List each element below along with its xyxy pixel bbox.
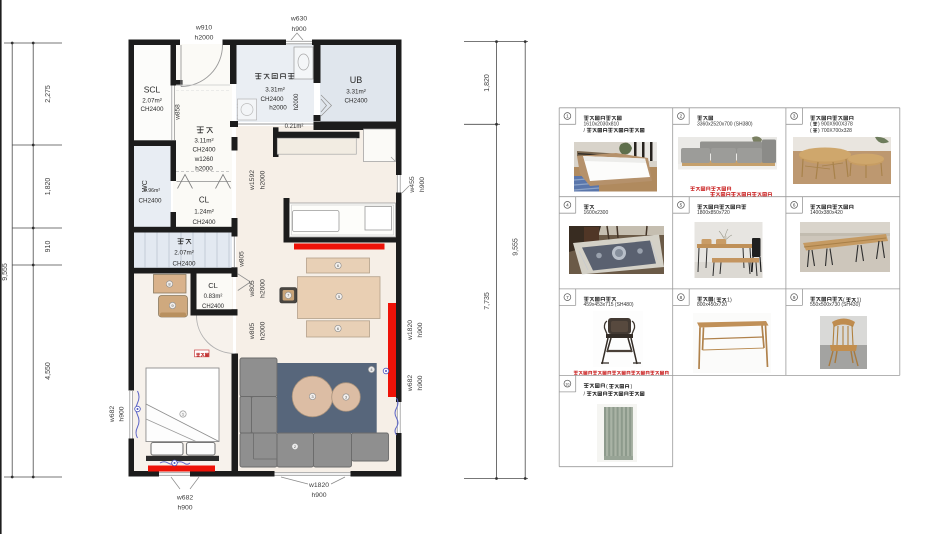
- svg-text:CH2400: CH2400: [172, 261, 196, 268]
- svg-text:h2000: h2000: [260, 170, 267, 189]
- svg-text:3.31m²: 3.31m²: [265, 87, 285, 94]
- svg-text:CL: CL: [208, 281, 218, 290]
- svg-text:CH2400: CH2400: [260, 96, 284, 103]
- svg-text:4,550: 4,550: [45, 362, 52, 380]
- svg-text:459x453x715 (SH480): 459x453x715 (SH480): [584, 302, 634, 308]
- svg-text:550x500x730 (SH430): 550x500x730 (SH430): [810, 302, 860, 308]
- svg-text:CH2400: CH2400: [138, 198, 162, 205]
- svg-text:1,820: 1,820: [484, 74, 491, 92]
- svg-text:w682: w682: [176, 495, 193, 502]
- svg-text:910: 910: [45, 241, 52, 253]
- svg-text:w910: w910: [195, 25, 212, 32]
- svg-text:h2000: h2000: [260, 321, 267, 340]
- svg-text:) 700X700x328: ) 700X700x328: [818, 128, 852, 134]
- svg-text:h900: h900: [311, 492, 326, 499]
- svg-text:CL: CL: [199, 196, 210, 205]
- svg-text:w805: w805: [249, 280, 256, 297]
- svg-text:h2000: h2000: [260, 279, 267, 298]
- svg-text:4: 4: [566, 203, 569, 208]
- svg-text:5: 5: [680, 203, 683, 208]
- svg-text:w682: w682: [109, 406, 116, 423]
- svg-text:w805: w805: [249, 323, 256, 340]
- svg-text:0.83m²: 0.83m²: [204, 294, 223, 300]
- svg-text:h900: h900: [417, 375, 424, 390]
- svg-text:CH2400: CH2400: [140, 106, 164, 113]
- svg-text:): ): [631, 384, 633, 390]
- svg-text:1: 1: [566, 114, 569, 119]
- svg-text:1,820: 1,820: [45, 178, 52, 196]
- svg-text:w455: w455: [409, 176, 416, 193]
- svg-text:h2000: h2000: [195, 166, 213, 173]
- svg-text:1.24m²: 1.24m²: [194, 209, 214, 216]
- svg-text:CH2400: CH2400: [344, 98, 368, 105]
- svg-text:(: (: [606, 384, 608, 390]
- svg-text:w1260: w1260: [194, 156, 214, 163]
- svg-text:3360x2520x700 (SH380): 3360x2520x700 (SH380): [697, 121, 753, 127]
- svg-text:w1820: w1820: [308, 482, 329, 489]
- svg-text:h900: h900: [119, 406, 126, 421]
- svg-text:2,275: 2,275: [45, 85, 52, 103]
- svg-text:UB: UB: [350, 75, 363, 85]
- svg-text:7,735: 7,735: [484, 292, 491, 310]
- svg-text:w682: w682: [407, 375, 414, 392]
- svg-text:1600x2300: 1600x2300: [584, 210, 609, 216]
- svg-text:h900: h900: [417, 322, 424, 337]
- svg-text:h2000: h2000: [195, 35, 214, 42]
- svg-text:w1820: w1820: [407, 320, 414, 341]
- svg-text:w858: w858: [175, 104, 182, 121]
- svg-text:7: 7: [566, 295, 569, 300]
- svg-text:6: 6: [793, 203, 796, 208]
- svg-text:CH2400: CH2400: [192, 147, 216, 154]
- svg-text:3.11m²: 3.11m²: [194, 138, 213, 145]
- svg-text:0.96m²: 0.96m²: [144, 188, 160, 194]
- svg-text:CH2400: CH2400: [202, 304, 225, 310]
- svg-text:9,555: 9,555: [2, 263, 9, 281]
- svg-text:1400x380x420: 1400x380x420: [810, 210, 843, 216]
- svg-text:w1592: w1592: [249, 170, 256, 191]
- svg-text:CH2400: CH2400: [192, 219, 216, 226]
- svg-text:2: 2: [680, 114, 683, 119]
- svg-text:1): 1): [727, 297, 732, 303]
- svg-text:1610x2030x810: 1610x2030x810: [584, 121, 620, 127]
- svg-text:w805: w805: [239, 251, 246, 268]
- svg-text:10: 10: [565, 382, 569, 386]
- svg-text:h2000: h2000: [294, 93, 300, 110]
- svg-text:0.21m²: 0.21m²: [285, 124, 304, 130]
- svg-text:h900: h900: [177, 505, 192, 512]
- svg-text:) 900X900X378: ) 900X900X378: [818, 121, 853, 127]
- svg-text:2.07m²: 2.07m²: [174, 250, 194, 257]
- svg-text:800x450x720: 800x450x720: [697, 302, 727, 308]
- svg-text:2.07m²: 2.07m²: [142, 98, 162, 105]
- svg-text:w630: w630: [290, 16, 307, 23]
- svg-text:9: 9: [793, 295, 796, 300]
- svg-text:1800x850x720: 1800x850x720: [697, 210, 730, 216]
- svg-text:h900: h900: [291, 26, 306, 33]
- svg-text:3.31m²: 3.31m²: [346, 89, 366, 96]
- svg-text:h2000: h2000: [269, 105, 287, 112]
- svg-text:9,555: 9,555: [513, 238, 520, 256]
- svg-text:8: 8: [680, 295, 683, 300]
- svg-text:SCL: SCL: [144, 85, 161, 95]
- svg-text:h900: h900: [419, 177, 426, 192]
- svg-text:3: 3: [793, 114, 796, 119]
